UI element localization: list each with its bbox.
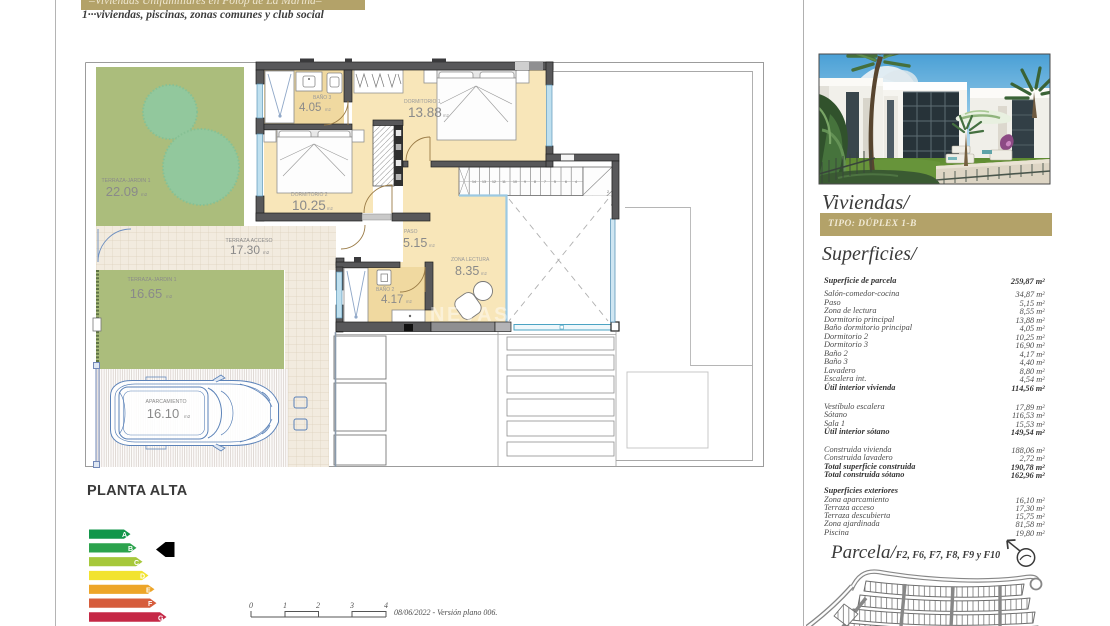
svg-text:13.88: 13.88 — [408, 105, 442, 120]
svg-text:5: 5 — [554, 180, 556, 184]
svg-text:1: 1 — [283, 601, 287, 610]
svg-text:m2: m2 — [325, 107, 331, 112]
svg-text:m2: m2 — [443, 113, 449, 118]
svg-text:m2: m2 — [327, 206, 333, 211]
svg-text:PASO: PASO — [404, 229, 418, 235]
svg-text:4.17: 4.17 — [381, 294, 403, 306]
svg-text:0: 0 — [249, 601, 253, 610]
svg-text:8: 8 — [534, 180, 536, 184]
svg-text:2: 2 — [316, 601, 320, 610]
svg-text:G: G — [158, 616, 164, 623]
svg-text:D: D — [140, 574, 145, 581]
svg-text:4: 4 — [575, 180, 577, 184]
svg-text:12: 12 — [492, 180, 496, 184]
svg-text:10: 10 — [513, 180, 517, 184]
svg-text:4: 4 — [384, 601, 388, 610]
svg-text:2: 2 — [607, 190, 609, 194]
svg-text:08/06/2022 - Versión plano 006: 08/06/2022 - Versión plano 006. — [394, 608, 497, 617]
svg-text:13: 13 — [482, 180, 486, 184]
svg-text:3: 3 — [349, 601, 354, 610]
svg-text:6: 6 — [565, 180, 567, 184]
svg-text:22.09: 22.09 — [106, 184, 139, 199]
svg-text:BAÑO 3: BAÑO 3 — [313, 94, 332, 101]
svg-text:ZONA LECTURA: ZONA LECTURA — [451, 257, 490, 263]
svg-text:4.05: 4.05 — [299, 102, 321, 114]
svg-text:m2: m2 — [406, 299, 412, 304]
svg-text:m2: m2 — [141, 192, 148, 197]
svg-text:11: 11 — [502, 180, 506, 184]
svg-text:9: 9 — [524, 180, 526, 184]
svg-text:E: E — [146, 588, 151, 595]
svg-text:m2: m2 — [166, 294, 173, 299]
svg-text:17.30: 17.30 — [230, 243, 260, 257]
svg-text:B: B — [128, 546, 133, 553]
svg-text:10.25: 10.25 — [292, 198, 326, 213]
svg-text:5.15: 5.15 — [403, 236, 427, 250]
svg-text:16.65: 16.65 — [130, 286, 163, 301]
svg-text:BAÑO 2: BAÑO 2 — [376, 286, 395, 293]
svg-text:A: A — [122, 532, 127, 539]
svg-text:F: F — [148, 601, 153, 608]
svg-text:16.10: 16.10 — [147, 406, 180, 421]
svg-text:APARCAMIENTO: APARCAMIENTO — [145, 399, 186, 405]
svg-text:C: C — [134, 560, 139, 567]
svg-text:7: 7 — [544, 180, 546, 184]
svg-text:m2: m2 — [429, 243, 435, 248]
svg-text:m2: m2 — [184, 414, 191, 419]
svg-text:8.35: 8.35 — [455, 264, 479, 278]
svg-text:m2: m2 — [263, 250, 270, 255]
svg-text:m2: m2 — [481, 271, 487, 276]
svg-text:NEVASOL: NEVASOL — [430, 304, 543, 326]
svg-text:14: 14 — [472, 180, 476, 184]
svg-text:TERRAZA-JARDIN 1: TERRAZA-JARDIN 1 — [128, 277, 177, 283]
